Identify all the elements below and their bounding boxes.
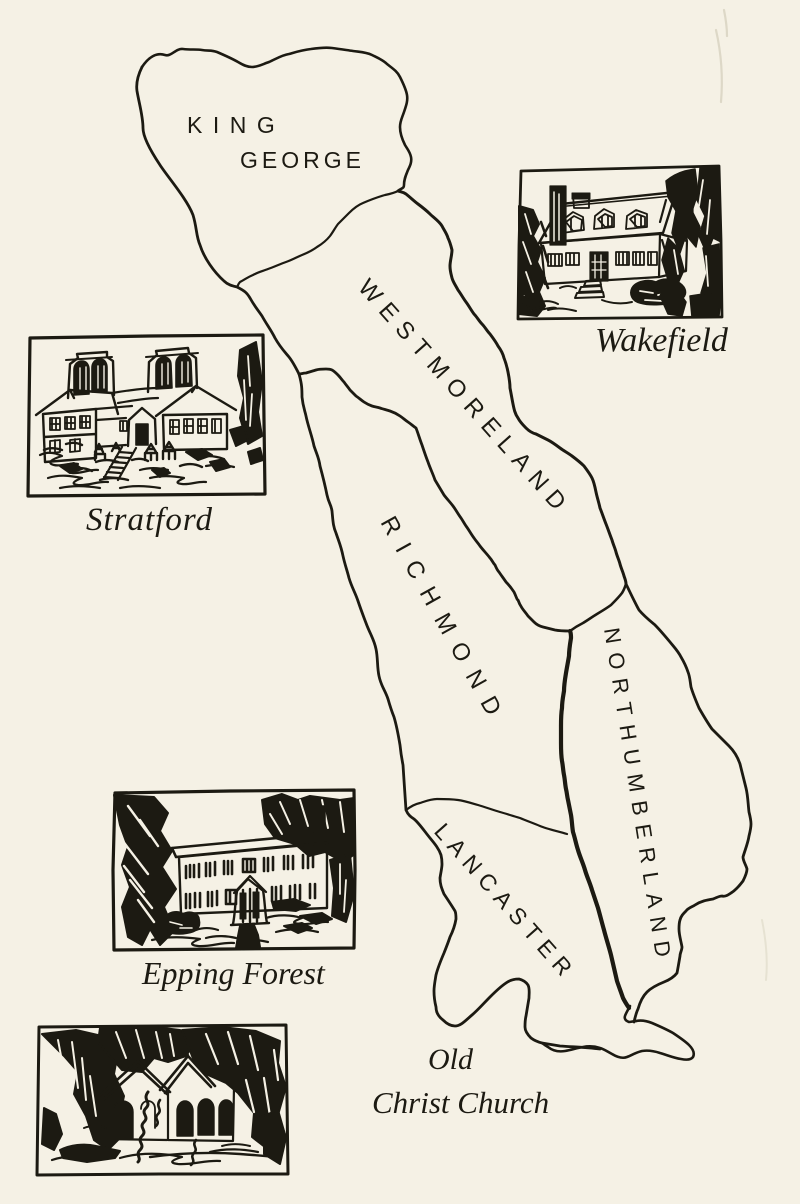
svg-text:GEORGE: GEORGE (240, 147, 365, 173)
svg-text:Epping Forest: Epping Forest (141, 955, 326, 991)
svg-text:Old: Old (428, 1043, 474, 1076)
svg-text:Christ Church: Christ Church (372, 1085, 549, 1120)
svg-text:Wakefield: Wakefield (595, 322, 729, 359)
svg-text:KING: KING (187, 112, 285, 138)
svg-text:Stratford: Stratford (86, 502, 213, 538)
